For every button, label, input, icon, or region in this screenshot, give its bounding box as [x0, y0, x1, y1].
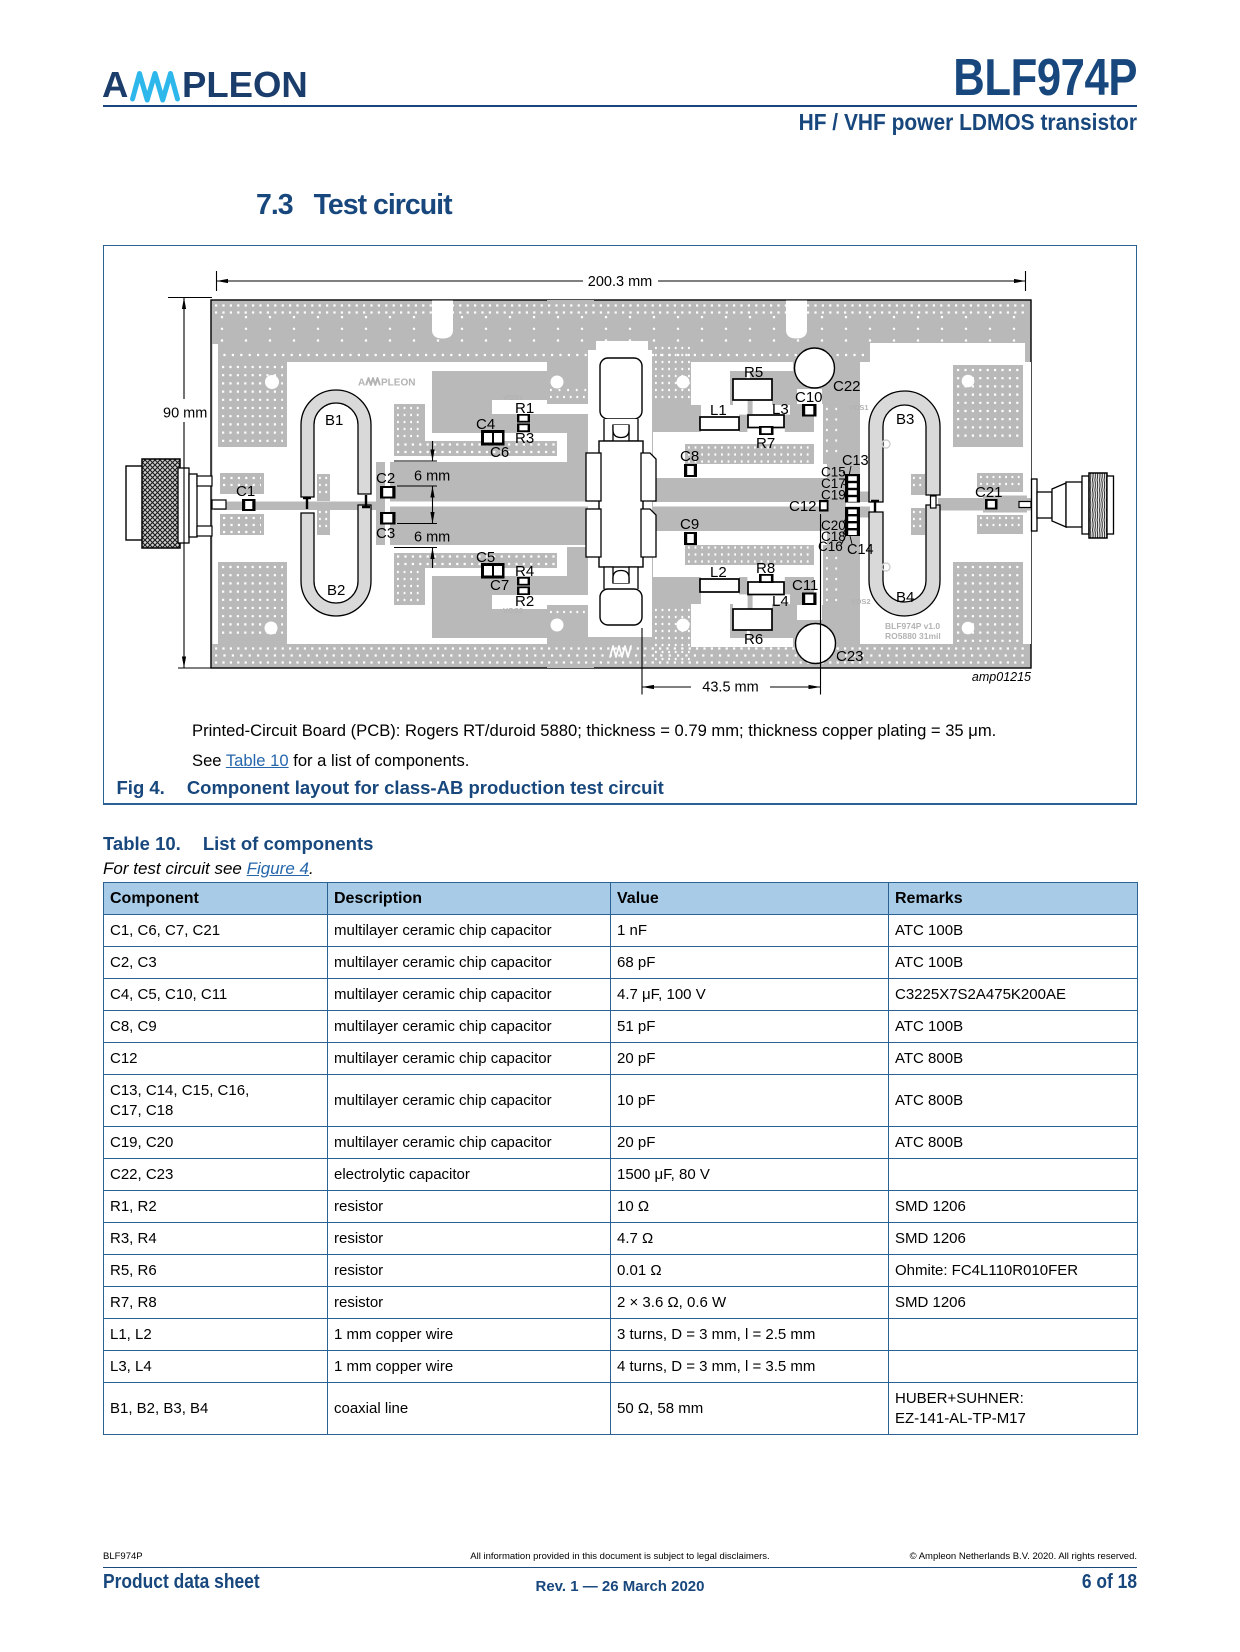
svg-text:C13: C13 — [842, 453, 869, 469]
svg-text:BLF974P v1.0: BLF974P v1.0 — [885, 621, 940, 631]
svg-text:B3: B3 — [896, 411, 914, 428]
svg-text:L3: L3 — [772, 401, 789, 418]
svg-text:C7: C7 — [490, 577, 509, 594]
svg-text:43.5 mm: 43.5 mm — [702, 680, 758, 696]
svg-text:B2: B2 — [327, 582, 345, 599]
svg-text:A: A — [358, 378, 365, 389]
svg-text:C1: C1 — [236, 483, 255, 500]
svg-text:C14: C14 — [847, 542, 874, 558]
svg-text:VDS2: VDS2 — [851, 597, 871, 606]
svg-text:C19: C19 — [821, 488, 846, 503]
svg-text:VGS1: VGS1 — [503, 393, 523, 402]
svg-text:A: A — [102, 64, 128, 105]
svg-text:L1: L1 — [710, 402, 727, 419]
svg-text:R3: R3 — [515, 430, 534, 447]
svg-text:C2: C2 — [376, 470, 395, 487]
svg-text:R4: R4 — [515, 563, 534, 580]
svg-text:R5: R5 — [744, 364, 763, 381]
svg-text:VGS2: VGS2 — [503, 606, 523, 615]
svg-text:R1: R1 — [515, 400, 534, 417]
svg-text:B1: B1 — [325, 412, 343, 429]
svg-text:C6: C6 — [490, 444, 509, 461]
svg-text:6 mm: 6 mm — [414, 530, 450, 546]
svg-text:C10: C10 — [795, 389, 823, 406]
svg-text:C8: C8 — [680, 448, 699, 465]
svg-text:C5: C5 — [476, 549, 495, 566]
svg-text:6 mm: 6 mm — [414, 469, 450, 485]
svg-text:C9: C9 — [680, 516, 699, 533]
svg-text:L2: L2 — [710, 564, 727, 581]
svg-text:C21: C21 — [975, 484, 1003, 501]
svg-text:RO5880 31mil: RO5880 31mil — [885, 631, 941, 641]
svg-text:PLEON: PLEON — [182, 64, 308, 105]
svg-text:C22: C22 — [833, 378, 861, 395]
svg-text:C3: C3 — [376, 525, 395, 542]
svg-text:C4: C4 — [476, 416, 495, 433]
svg-text:C23: C23 — [836, 648, 864, 665]
svg-text:R7: R7 — [756, 435, 775, 452]
svg-text:90 mm: 90 mm — [163, 406, 207, 422]
svg-text:C11: C11 — [792, 577, 818, 594]
svg-text:amp01215: amp01215 — [972, 670, 1031, 684]
svg-text:PLEON: PLEON — [381, 378, 415, 389]
svg-text:R6: R6 — [744, 631, 763, 648]
svg-text:C16: C16 — [818, 539, 843, 554]
svg-text:VDS1: VDS1 — [849, 403, 869, 412]
svg-text:C12: C12 — [789, 498, 817, 515]
svg-text:B4: B4 — [896, 589, 914, 606]
svg-text:R8: R8 — [756, 560, 775, 577]
svg-text:200.3 mm: 200.3 mm — [588, 274, 652, 290]
svg-text:L4: L4 — [772, 593, 789, 610]
